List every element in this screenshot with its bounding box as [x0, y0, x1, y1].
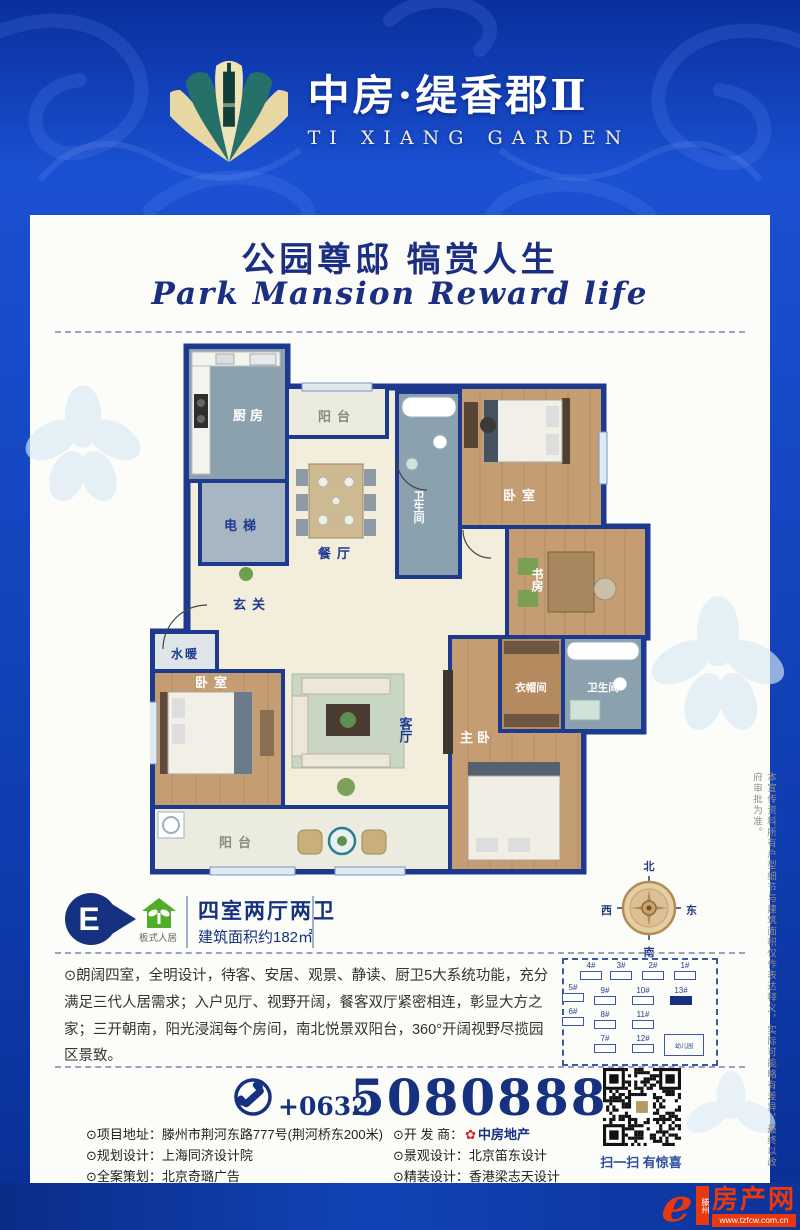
building: 6#	[560, 1008, 586, 1026]
divider	[55, 331, 745, 333]
building-shape	[674, 971, 696, 980]
leaf-watermark	[18, 380, 148, 510]
room-label-bath-top: 卫生间	[412, 490, 425, 524]
building-shape	[580, 971, 602, 980]
room-label-kitchen: 厨房	[233, 408, 267, 423]
phone-number: 5080888	[350, 1068, 608, 1127]
site-logo-region: 滕州	[696, 1186, 709, 1225]
building: 4#	[578, 962, 604, 980]
kindergarten-building: 幼儿园	[664, 1034, 704, 1056]
room-label-bath-master: 卫生间	[587, 681, 619, 694]
developer: ⊙开 发 商：✿中房地产	[393, 1124, 560, 1145]
building: 1#	[672, 962, 698, 980]
brand-subtitle: TI XIANG GARDEN	[308, 127, 631, 149]
compass-west: 西	[601, 902, 612, 918]
building-shape	[594, 1044, 616, 1053]
divider	[312, 896, 314, 948]
room-label-balcony-bottom: 阳台	[219, 835, 257, 850]
qr-caption: 扫一扫 有惊喜	[585, 1152, 697, 1171]
unit-layout: 四室两厅两卫	[198, 895, 336, 925]
unit-badge-letter: E	[78, 901, 99, 937]
qr-code	[603, 1068, 681, 1146]
building: 9#	[592, 987, 618, 1005]
building-shape	[562, 1017, 584, 1026]
compass-east: 东	[686, 902, 697, 918]
building: 2#	[640, 962, 666, 980]
room-label-bedroom-top: 卧室	[503, 488, 541, 503]
building: 12#	[630, 1035, 656, 1053]
slogan-en: Park Mansion Reward life	[0, 276, 800, 312]
description: ⊙朗阔四室，全明设计，待客、安居、观景、静读、厨卫5大系统功能，充分满足三代人居…	[64, 963, 550, 1070]
room-label-balcony-top: 阳台	[318, 409, 356, 424]
planning-design: ⊙规划设计：上海同济设计院	[86, 1145, 383, 1166]
disclaimer: 本宣传资料所有户型细节与建筑面积仅作表达释义，实际可能略有差异，最终以政府审批为…	[749, 772, 777, 1176]
unit-area: 建筑面积约182㎡	[198, 926, 313, 947]
building-shape	[632, 1044, 654, 1053]
landscape-design: ⊙景观设计：北京笛东设计	[393, 1145, 560, 1166]
room-label-dining: 餐厅	[317, 546, 356, 561]
divider	[186, 896, 188, 948]
footer: e 滕州 房产网 www.tzfcw.com.cn	[0, 1183, 800, 1230]
eco-caption: 板式人居	[124, 930, 192, 944]
room-label-study: 书房	[530, 567, 544, 593]
divider	[55, 952, 745, 954]
site-logo-url: www.tzfcw.com.cn	[712, 1214, 796, 1227]
room-label-elevator: 电梯	[224, 518, 262, 533]
room-label-cloakroom: 衣帽间	[515, 681, 547, 694]
building-shape	[642, 971, 664, 980]
building: 11#	[630, 1011, 656, 1029]
building: 7#	[592, 1035, 618, 1053]
project-address: ⊙项目地址：滕州市荆河东路777号(荆河桥东200米)	[86, 1124, 383, 1145]
compass: 北 南 西 东	[601, 858, 697, 960]
floorplan: 厨房 阳台 卫生间 卧室 电梯 餐厅 玄关 书房 水暖 卧室 客厅 衣帽间 卫生…	[150, 342, 665, 882]
brand-title: 中房·缇香郡Ⅱ	[308, 73, 631, 119]
building-shape	[670, 996, 692, 1005]
building-shape	[562, 993, 584, 1002]
room-label-living: 客厅	[398, 716, 413, 744]
room-label-bedroom-left: 卧室	[195, 675, 233, 690]
phone-icon	[232, 1076, 274, 1118]
building-highlighted: 13#	[668, 987, 694, 1005]
compass-north: 北	[601, 858, 697, 874]
room-label-entry: 玄关	[233, 597, 271, 612]
building-shape	[594, 1020, 616, 1029]
building-shape	[632, 1020, 654, 1029]
developer-flower-icon: ✿	[465, 1127, 476, 1142]
contact-left: ⊙项目地址：滕州市荆河东路777号(荆河桥东200米) ⊙规划设计：上海同济设计…	[86, 1124, 383, 1187]
compass-rose-icon	[617, 876, 681, 940]
site-logo: e 滕州 房产网 www.tzfcw.com.cn	[663, 1186, 796, 1227]
brand-logo-icon	[170, 52, 288, 170]
leaf-watermark	[648, 590, 788, 740]
building-shape	[610, 971, 632, 980]
building: 10#	[630, 987, 656, 1005]
site-logo-name: 房产网	[712, 1186, 796, 1212]
eco-house-icon	[140, 897, 178, 929]
building-shape	[594, 996, 616, 1005]
room-label-master: 主卧	[460, 730, 494, 745]
building: 8#	[592, 1011, 618, 1029]
building: 3#	[608, 962, 634, 980]
room-label-plumbing: 水暖	[171, 646, 199, 661]
slogan-cn: 公园尊邸 犒赏人生	[0, 232, 800, 281]
siteplan: 4# 3# 2# 1# 5# 9# 10# 13# 6# 8# 11# 7# 1…	[562, 958, 718, 1066]
contact-right: ⊙开 发 商：✿中房地产 ⊙景观设计：北京笛东设计 ⊙精装设计：香港梁志天设计	[393, 1124, 560, 1187]
poster: 中房·缇香郡Ⅱ TI XIANG GARDEN 公园尊邸 犒赏人生 Park M…	[0, 0, 800, 1230]
site-logo-e-icon: e	[659, 1186, 695, 1224]
building: 5#	[560, 984, 586, 1002]
building-shape	[632, 996, 654, 1005]
brand: 中房·缇香郡Ⅱ TI XIANG GARDEN	[0, 52, 800, 170]
